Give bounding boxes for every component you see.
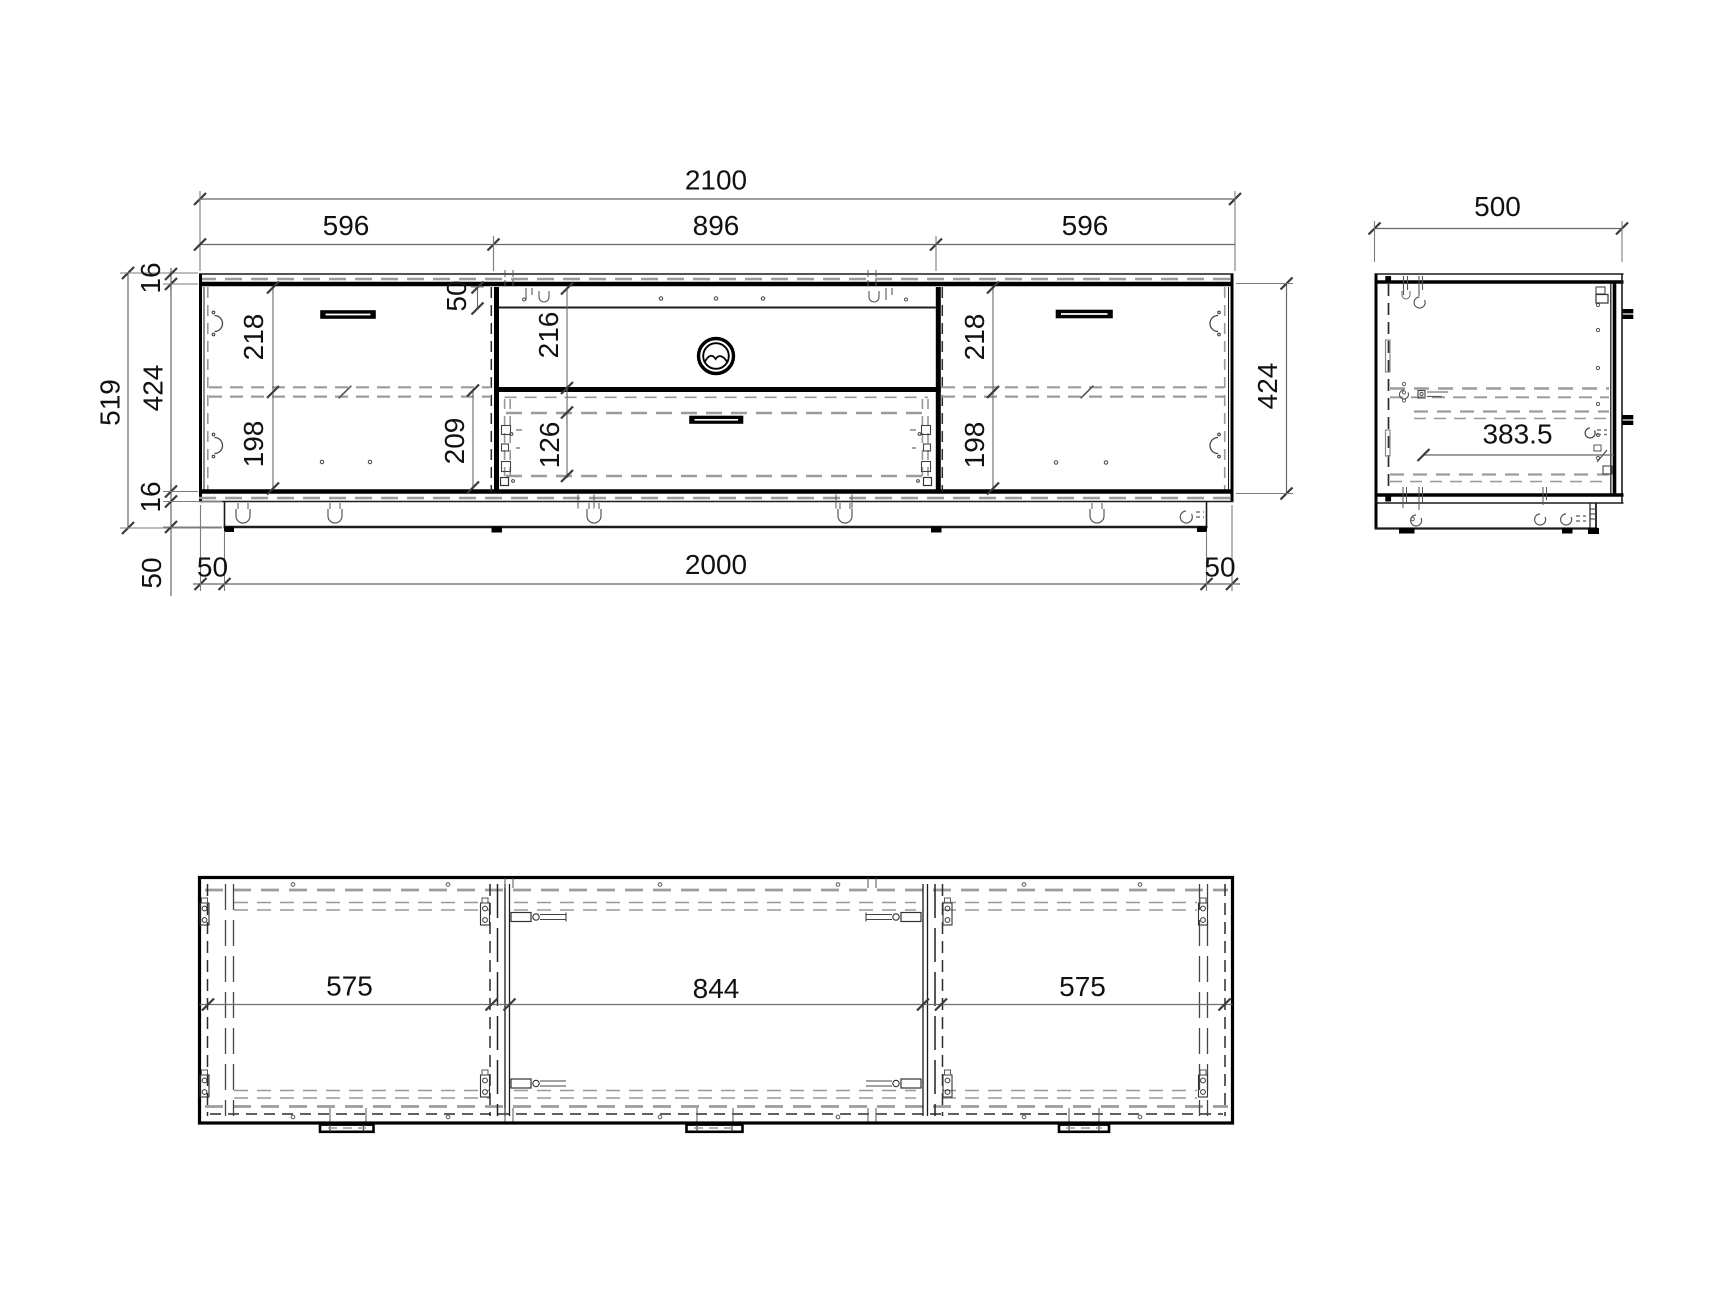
svg-text:844: 844 [693, 973, 740, 1004]
svg-text:198: 198 [959, 422, 990, 469]
svg-text:50: 50 [441, 280, 472, 311]
svg-text:16: 16 [135, 481, 166, 512]
svg-text:596: 596 [1062, 210, 1109, 241]
svg-text:198: 198 [238, 421, 269, 468]
svg-text:575: 575 [1059, 971, 1106, 1002]
svg-text:500: 500 [1474, 191, 1521, 222]
svg-text:16: 16 [135, 262, 166, 293]
svg-text:218: 218 [959, 314, 990, 361]
svg-text:519: 519 [95, 379, 126, 426]
svg-text:424: 424 [1252, 363, 1283, 410]
svg-text:896: 896 [693, 210, 740, 241]
svg-text:424: 424 [138, 365, 169, 412]
svg-text:383.5: 383.5 [1482, 419, 1552, 450]
svg-text:218: 218 [238, 314, 269, 361]
svg-text:50: 50 [136, 557, 167, 588]
svg-text:596: 596 [323, 210, 370, 241]
svg-text:50: 50 [197, 552, 228, 583]
svg-text:2100: 2100 [685, 165, 747, 196]
svg-text:2000: 2000 [685, 549, 747, 580]
svg-text:126: 126 [534, 422, 565, 469]
svg-text:209: 209 [439, 418, 470, 465]
svg-text:575: 575 [326, 971, 373, 1002]
svg-text:50: 50 [1204, 552, 1235, 583]
svg-text:216: 216 [533, 312, 564, 359]
